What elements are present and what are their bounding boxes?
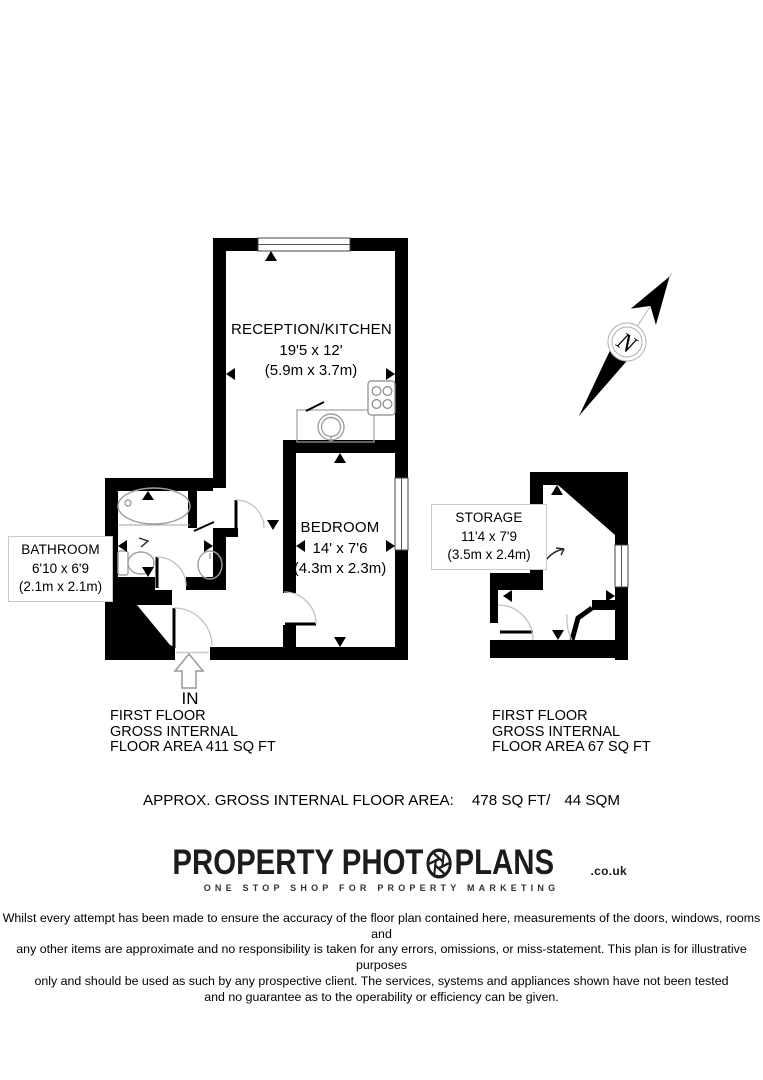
- reception-label: RECEPTION/KITCHEN 19'5 x 12' (5.9m x 3.7…: [231, 320, 391, 382]
- bedroom-door: [284, 592, 316, 624]
- logo: PROPERTY PHOT PLANS .co.uk: [0, 843, 763, 883]
- compass-icon: N: [563, 263, 687, 426]
- storage-window: [615, 545, 628, 587]
- storage-area-line1: FIRST FLOOR: [492, 709, 651, 725]
- entrance-label: IN: [182, 689, 199, 708]
- closet-door: [194, 500, 264, 531]
- reception-name: RECEPTION/KITCHEN: [231, 320, 391, 341]
- storage-area-summary: FIRST FLOOR GROSS INTERNAL FLOOR AREA 67…: [492, 709, 651, 756]
- bedroom-name: BEDROOM: [265, 518, 415, 539]
- disclaimer-line3: only and should be used as such by any p…: [0, 974, 763, 990]
- main-area-line1: FIRST FLOOR: [110, 709, 276, 725]
- entrance-arrow-icon: [175, 654, 203, 688]
- disclaimer-line2: any other items are approximate and no r…: [0, 942, 763, 973]
- entrance-door: [174, 608, 212, 653]
- reception-dims-metric: (5.9m x 3.7m): [231, 361, 391, 382]
- disclaimer-line1: Whilst every attempt has been made to en…: [0, 911, 763, 942]
- main-unit-walls: [105, 238, 408, 660]
- storage-direction-arrow: [546, 548, 564, 560]
- floorplan-page: IN N RECEPTION/KITCHEN 19'5 x 12' (5.9m …: [0, 0, 763, 1080]
- storage-dims: 11'4 x 7'9: [432, 528, 546, 547]
- total-area-sqft: 478 SQ FT/: [472, 792, 551, 809]
- hob-icon: [368, 381, 395, 415]
- logo-domain-suffix: .co.uk: [591, 864, 627, 883]
- bathroom-label: BATHROOM 6'10 x 6'9 (2.1m x 2.1m): [8, 536, 113, 602]
- aperture-icon: [425, 847, 453, 880]
- reception-dims: 19'5 x 12': [231, 341, 391, 362]
- bedroom-dims: 14' x 7'6: [265, 539, 415, 560]
- bathroom-direction-arrow: [139, 538, 148, 547]
- storage-area-line3: FLOOR AREA 67 SQ FT: [492, 740, 651, 756]
- bedroom-label: BEDROOM 14' x 7'6 (4.3m x 2.3m): [265, 518, 415, 580]
- total-area-line: APPROX. GROSS INTERNAL FLOOR AREA:478 SQ…: [0, 792, 763, 809]
- logo-text-left: PROPERTY PHOT: [172, 843, 423, 883]
- total-area-sqm: 44 SQM: [564, 792, 620, 809]
- reception-window: [258, 238, 350, 251]
- logo-text-right: PLANS: [454, 843, 554, 883]
- bathroom-dims-metric: (2.1m x 2.1m): [9, 578, 112, 597]
- bathroom-dims: 6'10 x 6'9: [9, 560, 112, 579]
- storage-name: STORAGE: [432, 509, 546, 528]
- main-area-line2: GROSS INTERNAL: [110, 725, 276, 741]
- main-area-line3: FLOOR AREA 411 SQ FT: [110, 740, 276, 756]
- bedroom-dims-metric: (4.3m x 2.3m): [265, 559, 415, 580]
- bathroom-door: [157, 557, 186, 588]
- logo-tagline: ONE STOP SHOP FOR PROPERTY MARKETING: [0, 883, 763, 893]
- bathtub-icon: [118, 488, 190, 525]
- main-area-summary: FIRST FLOOR GROSS INTERNAL FLOOR AREA 41…: [110, 709, 276, 756]
- logo-wordmark: PROPERTY PHOT PLANS: [172, 843, 554, 883]
- storage-left-door: [498, 605, 533, 640]
- disclaimer-line4: and no guarantee as to the operability o…: [0, 990, 763, 1006]
- disclaimer: Whilst every attempt has been made to en…: [0, 911, 763, 1005]
- storage-angled-door: [567, 608, 592, 640]
- storage-label: STORAGE 11'4 x 7'9 (3.5m x 2.4m): [431, 504, 547, 570]
- kitchen-sink-icon: [318, 414, 344, 442]
- storage-dims-metric: (3.5m x 2.4m): [432, 546, 546, 565]
- storage-area-line2: GROSS INTERNAL: [492, 725, 651, 741]
- bathroom-name: BATHROOM: [9, 541, 112, 560]
- total-area-label: APPROX. GROSS INTERNAL FLOOR AREA:: [143, 792, 454, 809]
